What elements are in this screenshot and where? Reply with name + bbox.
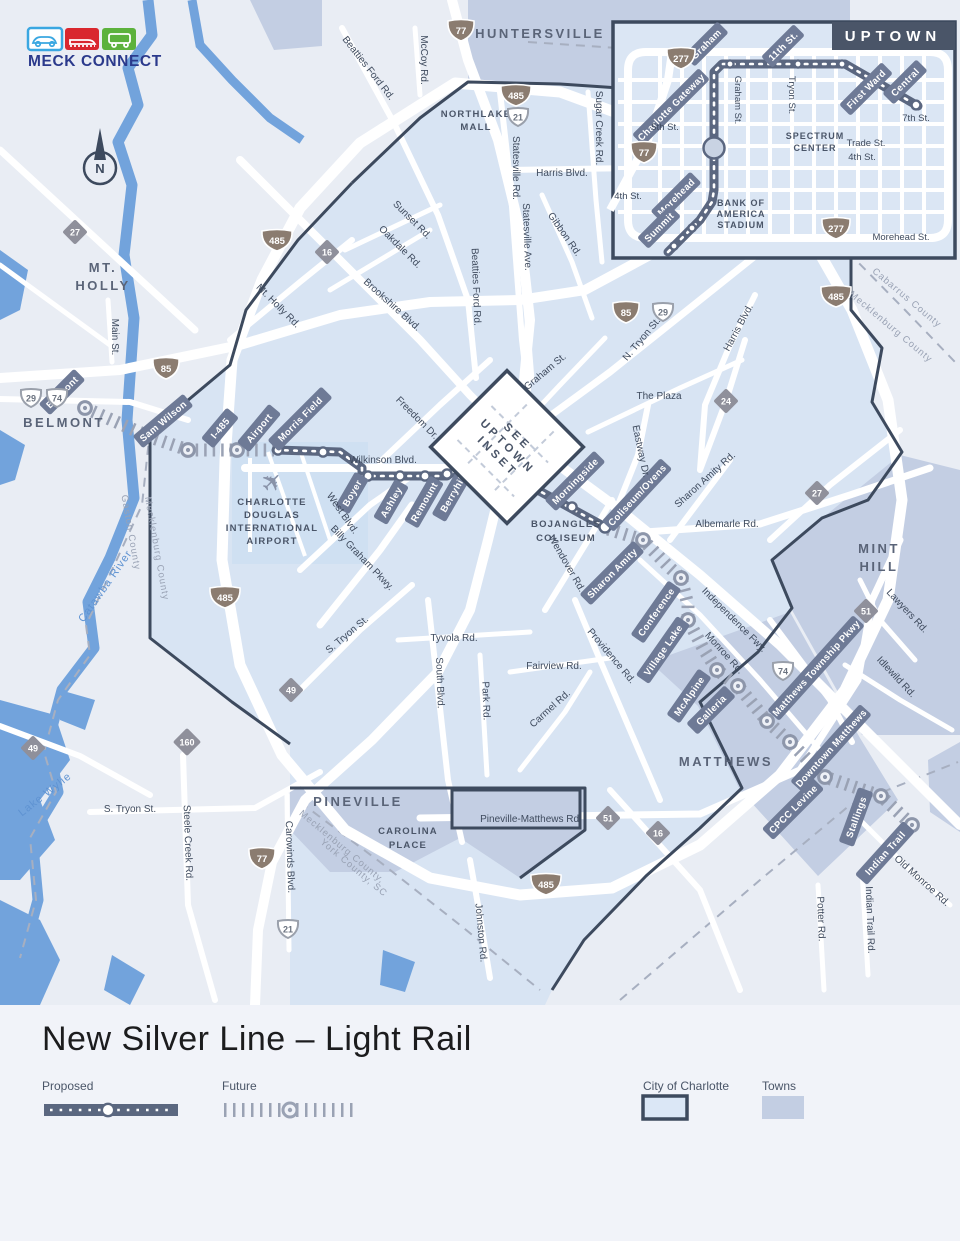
svg-text:74: 74 [52,394,62,404]
poi-carolina-place-2: PLACE [389,840,427,851]
inset-poi-stadium-1: BANK OF [717,198,765,208]
uptown-inset: Graham 11th St. First Ward Central Charl… [610,21,955,258]
svg-text:85: 85 [621,308,632,319]
road-label: Tyvola Rd. [430,633,477,644]
svg-text:16: 16 [653,829,663,839]
svg-text:51: 51 [861,607,871,617]
inset-street-graham: Graham St. [732,76,743,125]
svg-text:277: 277 [828,224,844,235]
poi-bojangles-1: BOJANGLES [531,519,601,530]
svg-text:160: 160 [179,738,194,748]
legend-towns-swatch [762,1096,804,1119]
poi-airport-4: AIRPORT [246,536,297,547]
inset-street-trade: Trade St. [847,138,886,149]
svg-text:27: 27 [812,489,822,499]
town-mt-holly-1: MT. [89,260,117,275]
poi-northlake-2: MALL [460,122,491,133]
svg-text:29: 29 [658,308,668,318]
inset-street-5th: 5th St. [651,122,678,133]
svg-text:21: 21 [283,925,293,935]
legend-proposed-label: Proposed [42,1079,93,1093]
road-label: Indian Trail Rd. [863,886,876,954]
poi-carolina-place-1: CAROLINA [378,826,438,837]
svg-text:29: 29 [26,394,36,404]
svg-text:485: 485 [508,91,525,102]
svg-text:49: 49 [28,744,38,754]
road-label: McCoy Rd. [418,35,429,84]
inset-gateway-hub [704,138,725,159]
silver-line-map-page: Belmont Sam Wilson I-485 Airport Morris … [0,0,960,1241]
town-pineville: PINEVILLE [313,794,403,809]
car-icon [28,28,62,50]
legend-towns-label: Towns [762,1079,796,1093]
legend-city-swatch [643,1096,687,1119]
road-label: Fairview Rd. [526,661,582,672]
town-huntersville: HUNTERSVILLE [475,26,605,41]
svg-text:77: 77 [456,26,467,37]
svg-text:85: 85 [161,364,172,375]
road-label: Pineville-Matthews Rd. [480,814,582,825]
svg-text:77: 77 [257,854,268,865]
poi-airport-1: CHARLOTTE [237,497,306,508]
svg-text:277: 277 [673,54,689,65]
map-canvas: Belmont Sam Wilson I-485 Airport Morris … [0,0,960,1241]
inset-street-morehead: Morehead St. [872,232,929,243]
road-label: Statesville Rd. [510,136,521,200]
svg-text:74: 74 [778,667,788,677]
svg-text:485: 485 [217,593,234,604]
inset-poi-spectrum-2: CENTER [793,143,836,153]
road-label: Albemarle Rd. [695,519,758,530]
svg-text:27: 27 [70,228,80,238]
inset-poi-stadium-3: STADIUM [717,220,764,230]
inset-street-7th: 7th St. [902,113,929,124]
town-mt-holly-2: HOLLY [75,278,130,293]
svg-text:21: 21 [513,113,523,123]
town-mint-hill-1: MINT [858,541,900,556]
poi-northlake-1: NORTHLAKE [441,109,511,120]
road-label: S. Tryon St. [104,804,156,815]
legend: New Silver Line – Light Rail Proposed Fu… [0,1005,960,1241]
svg-text:485: 485 [538,880,555,891]
legend-city-label: City of Charlotte [643,1079,729,1093]
poi-airport-2: DOUGLAS [244,510,300,521]
svg-text:16: 16 [322,248,332,258]
svg-text:24: 24 [721,397,731,407]
compass-label: N [95,161,104,176]
road-label: Sugar Creek Rd. [593,91,604,165]
legend-proposed-sample [44,1104,178,1116]
inset-title: UPTOWN [845,28,941,45]
road-label: The Plaza [636,391,681,402]
svg-text:49: 49 [286,686,296,696]
inset-poi-stadium-2: AMERICA [717,209,766,219]
svg-text:51: 51 [603,814,613,824]
logo-wordmark: MECK CONNECT [28,53,162,70]
town-matthews: MATTHEWS [679,754,773,769]
inset-poi-spectrum-1: SPECTRUM [786,131,845,141]
page-title: New Silver Line – Light Rail [42,1020,472,1058]
poi-airport-3: INTERNATIONAL [226,523,318,534]
town-mint-hill-2: HILL [860,559,899,574]
svg-text:77: 77 [639,148,650,159]
road-label: South Blvd. [433,657,446,709]
svg-text:485: 485 [269,236,286,247]
inset-street-4th-w: 4th St. [614,191,641,202]
road-label: Harris Blvd. [536,168,588,179]
svg-text:485: 485 [828,292,845,303]
road-label: Main St. [109,319,120,356]
road-label: Park Rd. [479,681,491,720]
inset-street-tryon: Tryon St. [786,76,797,114]
poi-bojangles-2: COLISEUM [536,533,596,544]
town-belmont: BELMONT [23,415,105,430]
road-label: Wilkinson Blvd. [349,455,417,466]
road-label: Potter Rd. [814,896,827,941]
inset-street-4th-e: 4th St. [848,152,875,163]
legend-future-label: Future [222,1079,257,1093]
